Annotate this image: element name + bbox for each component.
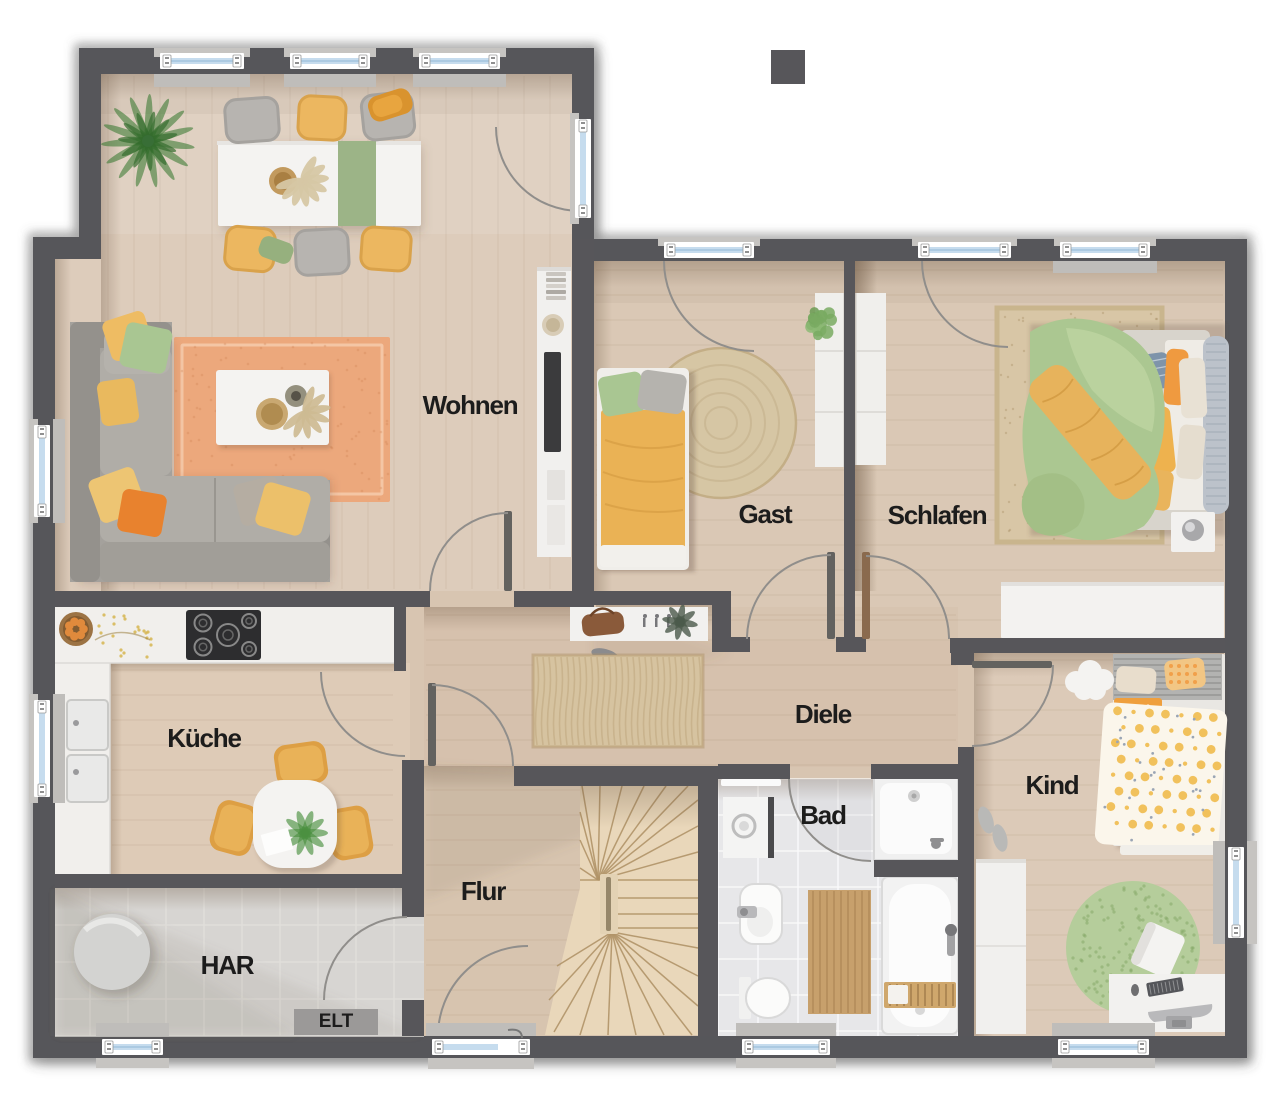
- svg-text:Schlafen: Schlafen: [888, 500, 987, 530]
- svg-text:HAR: HAR: [201, 950, 255, 980]
- svg-text:Gast: Gast: [738, 499, 793, 529]
- svg-text:Kind: Kind: [1026, 770, 1079, 800]
- svg-text:Wohnen: Wohnen: [423, 390, 518, 420]
- svg-text:Bad: Bad: [800, 800, 846, 830]
- svg-text:Flur: Flur: [461, 876, 506, 906]
- svg-text:Küche: Küche: [167, 723, 241, 753]
- svg-text:ELT: ELT: [319, 1011, 354, 1032]
- svg-text:Diele: Diele: [795, 699, 852, 729]
